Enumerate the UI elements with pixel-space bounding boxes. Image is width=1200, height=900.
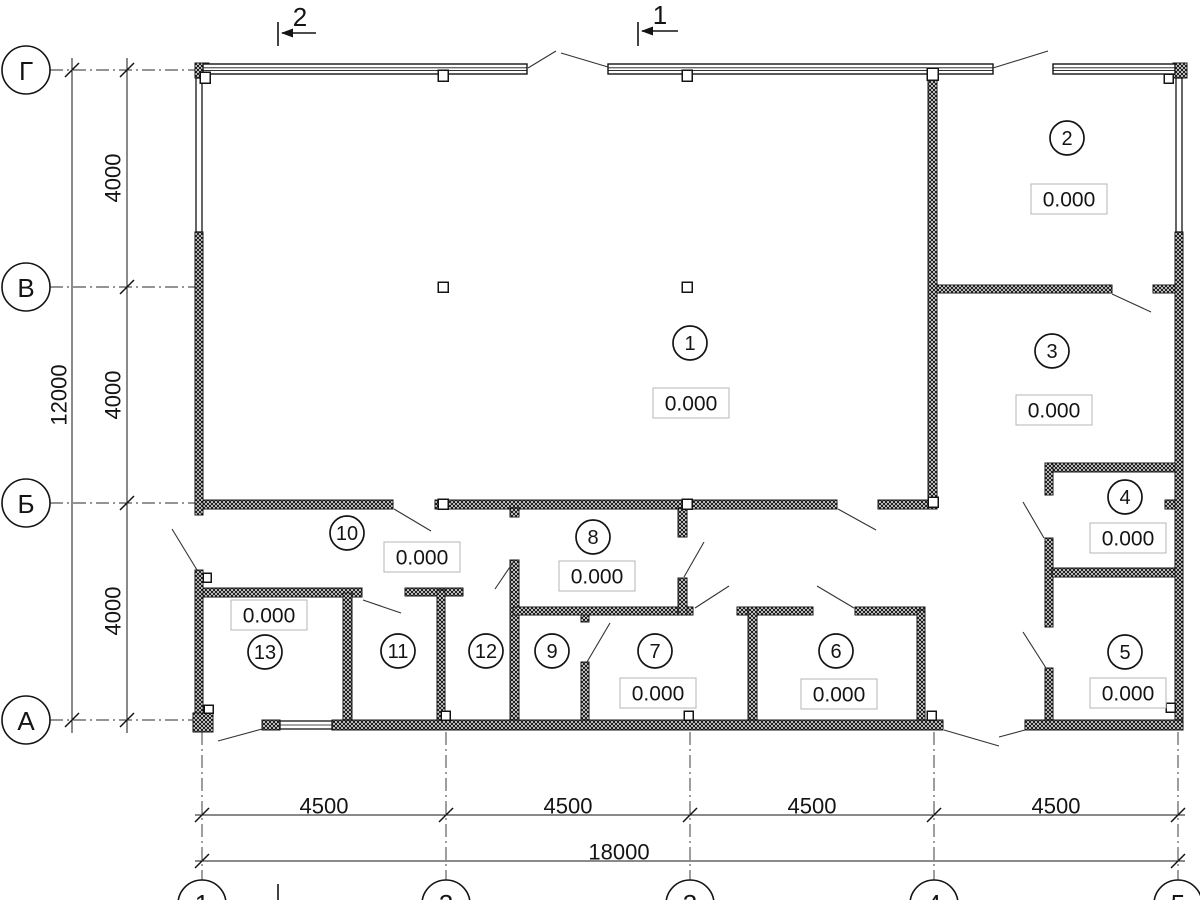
dimension-label: 4000 <box>101 371 126 420</box>
section-label: 2 <box>293 2 307 32</box>
column-marker <box>684 711 693 720</box>
wall-segment <box>1045 463 1053 495</box>
wall-segment <box>203 588 362 597</box>
wall-segment <box>1025 720 1183 730</box>
wall-segment <box>513 607 693 615</box>
room-number: 1 <box>684 333 695 355</box>
wall-segment <box>435 500 837 509</box>
wall-segment <box>195 232 203 515</box>
room-number: 2 <box>1061 128 1072 150</box>
elevation-label: 0.000 <box>1102 683 1155 706</box>
grid-label-col: 4 <box>927 889 941 900</box>
wall-segment <box>193 713 213 732</box>
elevation-label: 0.000 <box>1102 528 1155 551</box>
room-number: 5 <box>1119 642 1130 664</box>
column-marker <box>438 499 448 509</box>
elevation-label: 0.000 <box>813 684 866 707</box>
room-number: 9 <box>546 641 557 663</box>
column-marker <box>927 68 938 80</box>
wall-segment <box>1045 463 1175 472</box>
section-label: 1 <box>653 0 667 30</box>
wall-segment <box>1052 568 1175 577</box>
dimension-label: 18000 <box>588 840 649 865</box>
dimension-label: 4500 <box>788 794 837 819</box>
column-marker <box>682 282 692 292</box>
window-band <box>1053 64 1175 74</box>
elevation-label: 0.000 <box>665 393 718 416</box>
wall-segment <box>678 578 687 615</box>
column-marker <box>682 499 692 509</box>
room-number: 3 <box>1046 341 1057 363</box>
grid-label-row: А <box>17 706 35 736</box>
dimension-label: 4000 <box>101 154 126 203</box>
dimension-label: 4500 <box>1032 794 1081 819</box>
dimension-label: 4500 <box>300 794 349 819</box>
elevation-label: 0.000 <box>1043 189 1096 212</box>
wall-segment <box>855 607 925 615</box>
room-number: 12 <box>475 641 497 663</box>
column-marker <box>203 573 211 582</box>
column-marker <box>928 497 938 507</box>
column-marker <box>438 282 448 292</box>
room-number: 13 <box>254 642 276 664</box>
wall-segment <box>510 508 519 517</box>
floor-plan-drawing: ГВБА123451200040004000400045004500450045… <box>0 0 1200 900</box>
room-number: 4 <box>1119 487 1130 509</box>
wall-segment <box>262 720 280 730</box>
elevation-label: 0.000 <box>632 683 685 706</box>
column-marker <box>1164 74 1173 83</box>
dimension-label: 12000 <box>47 364 72 425</box>
wall-segment <box>1165 500 1175 509</box>
wall-segment <box>195 570 203 727</box>
elevation-label: 0.000 <box>1028 400 1081 423</box>
column-marker <box>438 70 448 81</box>
room-number: 11 <box>388 641 409 663</box>
wall-segment <box>510 560 519 720</box>
grid-label-col: 3 <box>683 889 697 900</box>
grid-label-col: 2 <box>439 889 453 900</box>
grid-label-row: В <box>17 273 34 303</box>
canvas-background <box>0 0 1200 900</box>
elevation-label: 0.000 <box>243 605 296 628</box>
wall-segment <box>748 607 757 720</box>
window-band <box>196 78 202 232</box>
wall-segment <box>581 662 589 720</box>
room-number: 6 <box>830 641 841 663</box>
wall-segment <box>917 610 925 720</box>
wall-segment <box>437 590 445 720</box>
grid-label-row: Г <box>19 56 33 86</box>
wall-segment <box>581 615 589 622</box>
column-marker <box>682 70 692 81</box>
wall-segment <box>405 588 463 596</box>
wall-segment <box>678 508 687 537</box>
elevation-label: 0.000 <box>396 547 449 570</box>
column-marker <box>927 711 936 720</box>
grid-label-row: Б <box>17 489 34 519</box>
grid-label-col: 5 <box>1171 889 1185 900</box>
wall-segment <box>937 285 1112 293</box>
wall-segment <box>1175 232 1183 728</box>
wall-segment <box>928 72 937 508</box>
wall-segment <box>1045 538 1053 627</box>
dimension-label: 4500 <box>544 794 593 819</box>
room-number: 10 <box>336 523 358 545</box>
wall-segment <box>343 593 352 720</box>
window-band <box>1176 78 1182 232</box>
wall-segment <box>203 500 393 509</box>
grid-label-col: 1 <box>195 889 209 900</box>
floor-plan: ГВБА123451200040004000400045004500450045… <box>0 0 1200 900</box>
room-number: 7 <box>649 641 660 663</box>
window-band <box>203 64 527 74</box>
elevation-label: 0.000 <box>571 566 624 589</box>
column-marker <box>200 72 210 83</box>
wall-segment <box>1153 285 1175 293</box>
column-marker <box>204 705 213 713</box>
column-marker <box>1166 703 1175 712</box>
wall-segment <box>332 720 943 730</box>
wall-segment <box>1045 668 1053 720</box>
room-number: 8 <box>587 527 598 549</box>
dimension-label: 4000 <box>101 587 126 636</box>
column-marker <box>441 711 450 720</box>
